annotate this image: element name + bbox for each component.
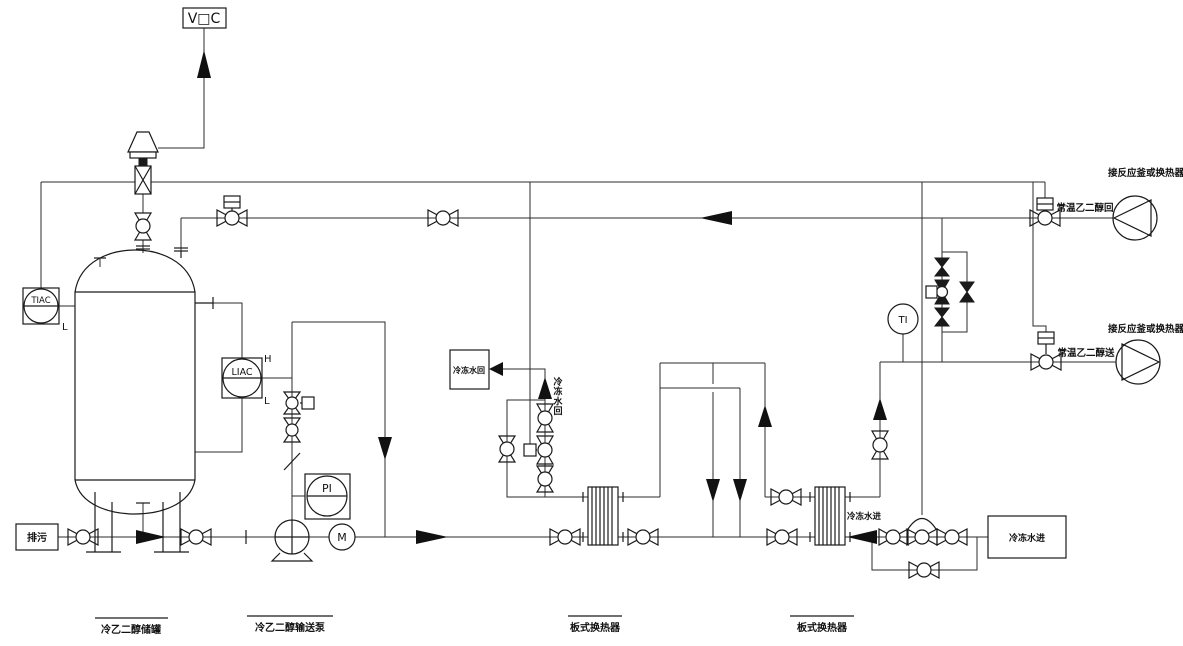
chilled-return-box: 冷冻水回 [450, 350, 489, 389]
tiac-low-marker: L [62, 322, 68, 333]
discharge-control-valve [284, 392, 314, 414]
chilled-in-box-label: 冷冻水进 [1009, 532, 1045, 544]
glycol-storage-tank [75, 246, 213, 552]
warm-glycol-return-label: 常温乙二醇回 [1056, 202, 1113, 214]
liac-high-marker: H [264, 354, 272, 365]
reactor-note-return: 接反应釜或换热器 [1108, 167, 1183, 179]
pump-label: 冷乙二醇输送泵 [255, 621, 326, 634]
crossover-down-arrow-1 [706, 479, 720, 502]
hx2-top-up-arrow [758, 405, 772, 427]
drain-box: 排污 [16, 524, 58, 550]
valves [68, 196, 1061, 578]
ti-tag: TI [897, 315, 907, 326]
plate-heat-exchanger-2 [810, 487, 850, 545]
instrument-pi: PI [305, 474, 350, 519]
cluster-block-valve-1 [935, 258, 949, 276]
pump-motor: M [329, 524, 355, 550]
riser-up-arrow [538, 377, 552, 399]
chilled-return-left-arrow [489, 362, 503, 376]
flow-arrows [136, 50, 887, 544]
chilled-in-box: 冷冻水进 [988, 516, 1066, 558]
vent-voc-box: V□C [183, 8, 226, 28]
vent-up-arrow [197, 50, 211, 78]
chilled-return-riser-label: 冷冻水回 [553, 376, 563, 417]
drain-right-arrow [136, 530, 166, 544]
chilled-in-control-valve [907, 519, 937, 546]
equipment-labels: 冷乙二醇储罐 冷乙二醇输送泵 板式换热器 板式换热器 [95, 616, 854, 636]
reactor-supply-pump [1116, 340, 1160, 384]
return-line-control-valve [217, 196, 247, 226]
drain-label: 排污 [27, 531, 47, 544]
chilled-return-control-valve [524, 436, 553, 464]
pi-tag: PI [322, 482, 332, 495]
chilled-in-line-label: 冷冻水进 [847, 511, 882, 522]
liac-low-marker: L [264, 396, 270, 407]
supply-up-arrow [873, 398, 887, 420]
hx2-label: 板式换热器 [797, 621, 848, 634]
instrument-liac: LIAC H L [222, 354, 272, 407]
pid-diagram: TIAC L LIAC H L PI TI M V□C 排污 冷冻水回 冷冻水进 [0, 0, 1183, 646]
tiac-tag: TIAC [30, 296, 50, 306]
liac-tag: LIAC [231, 367, 252, 378]
chilled-in-left-arrow [847, 530, 877, 544]
tank-label: 冷乙二醇储罐 [101, 623, 161, 636]
discharge-down-arrow [378, 437, 392, 460]
reactor-return-pump [1113, 196, 1157, 240]
warm-glycol-supply-label: 常温乙二醇送 [1057, 347, 1115, 359]
plate-heat-exchanger-1 [583, 487, 623, 545]
breather-valve [128, 132, 158, 166]
instrument-tiac: TIAC L [23, 288, 68, 333]
vent-valve [135, 213, 151, 240]
voc-label: V□C [188, 11, 221, 27]
hx1-feed-right-arrow [416, 530, 448, 544]
hx1-label: 板式换热器 [570, 621, 621, 634]
reactor-note-supply: 接反应釜或换热器 [1108, 323, 1183, 335]
flame-arrester [135, 166, 151, 194]
motor-tag: M [337, 531, 347, 544]
transfer-pump [246, 453, 312, 561]
piping-lines [41, 28, 1116, 570]
cluster-control-valve [926, 280, 949, 304]
cluster-block-valve-2 [935, 308, 949, 326]
instrument-ti: TI [888, 304, 918, 334]
crossover-down-arrow-2 [733, 479, 747, 502]
cluster-bypass-valve [960, 282, 974, 302]
chilled-return-box-label: 冷冻水回 [453, 365, 485, 375]
return-left-arrow [700, 211, 732, 225]
